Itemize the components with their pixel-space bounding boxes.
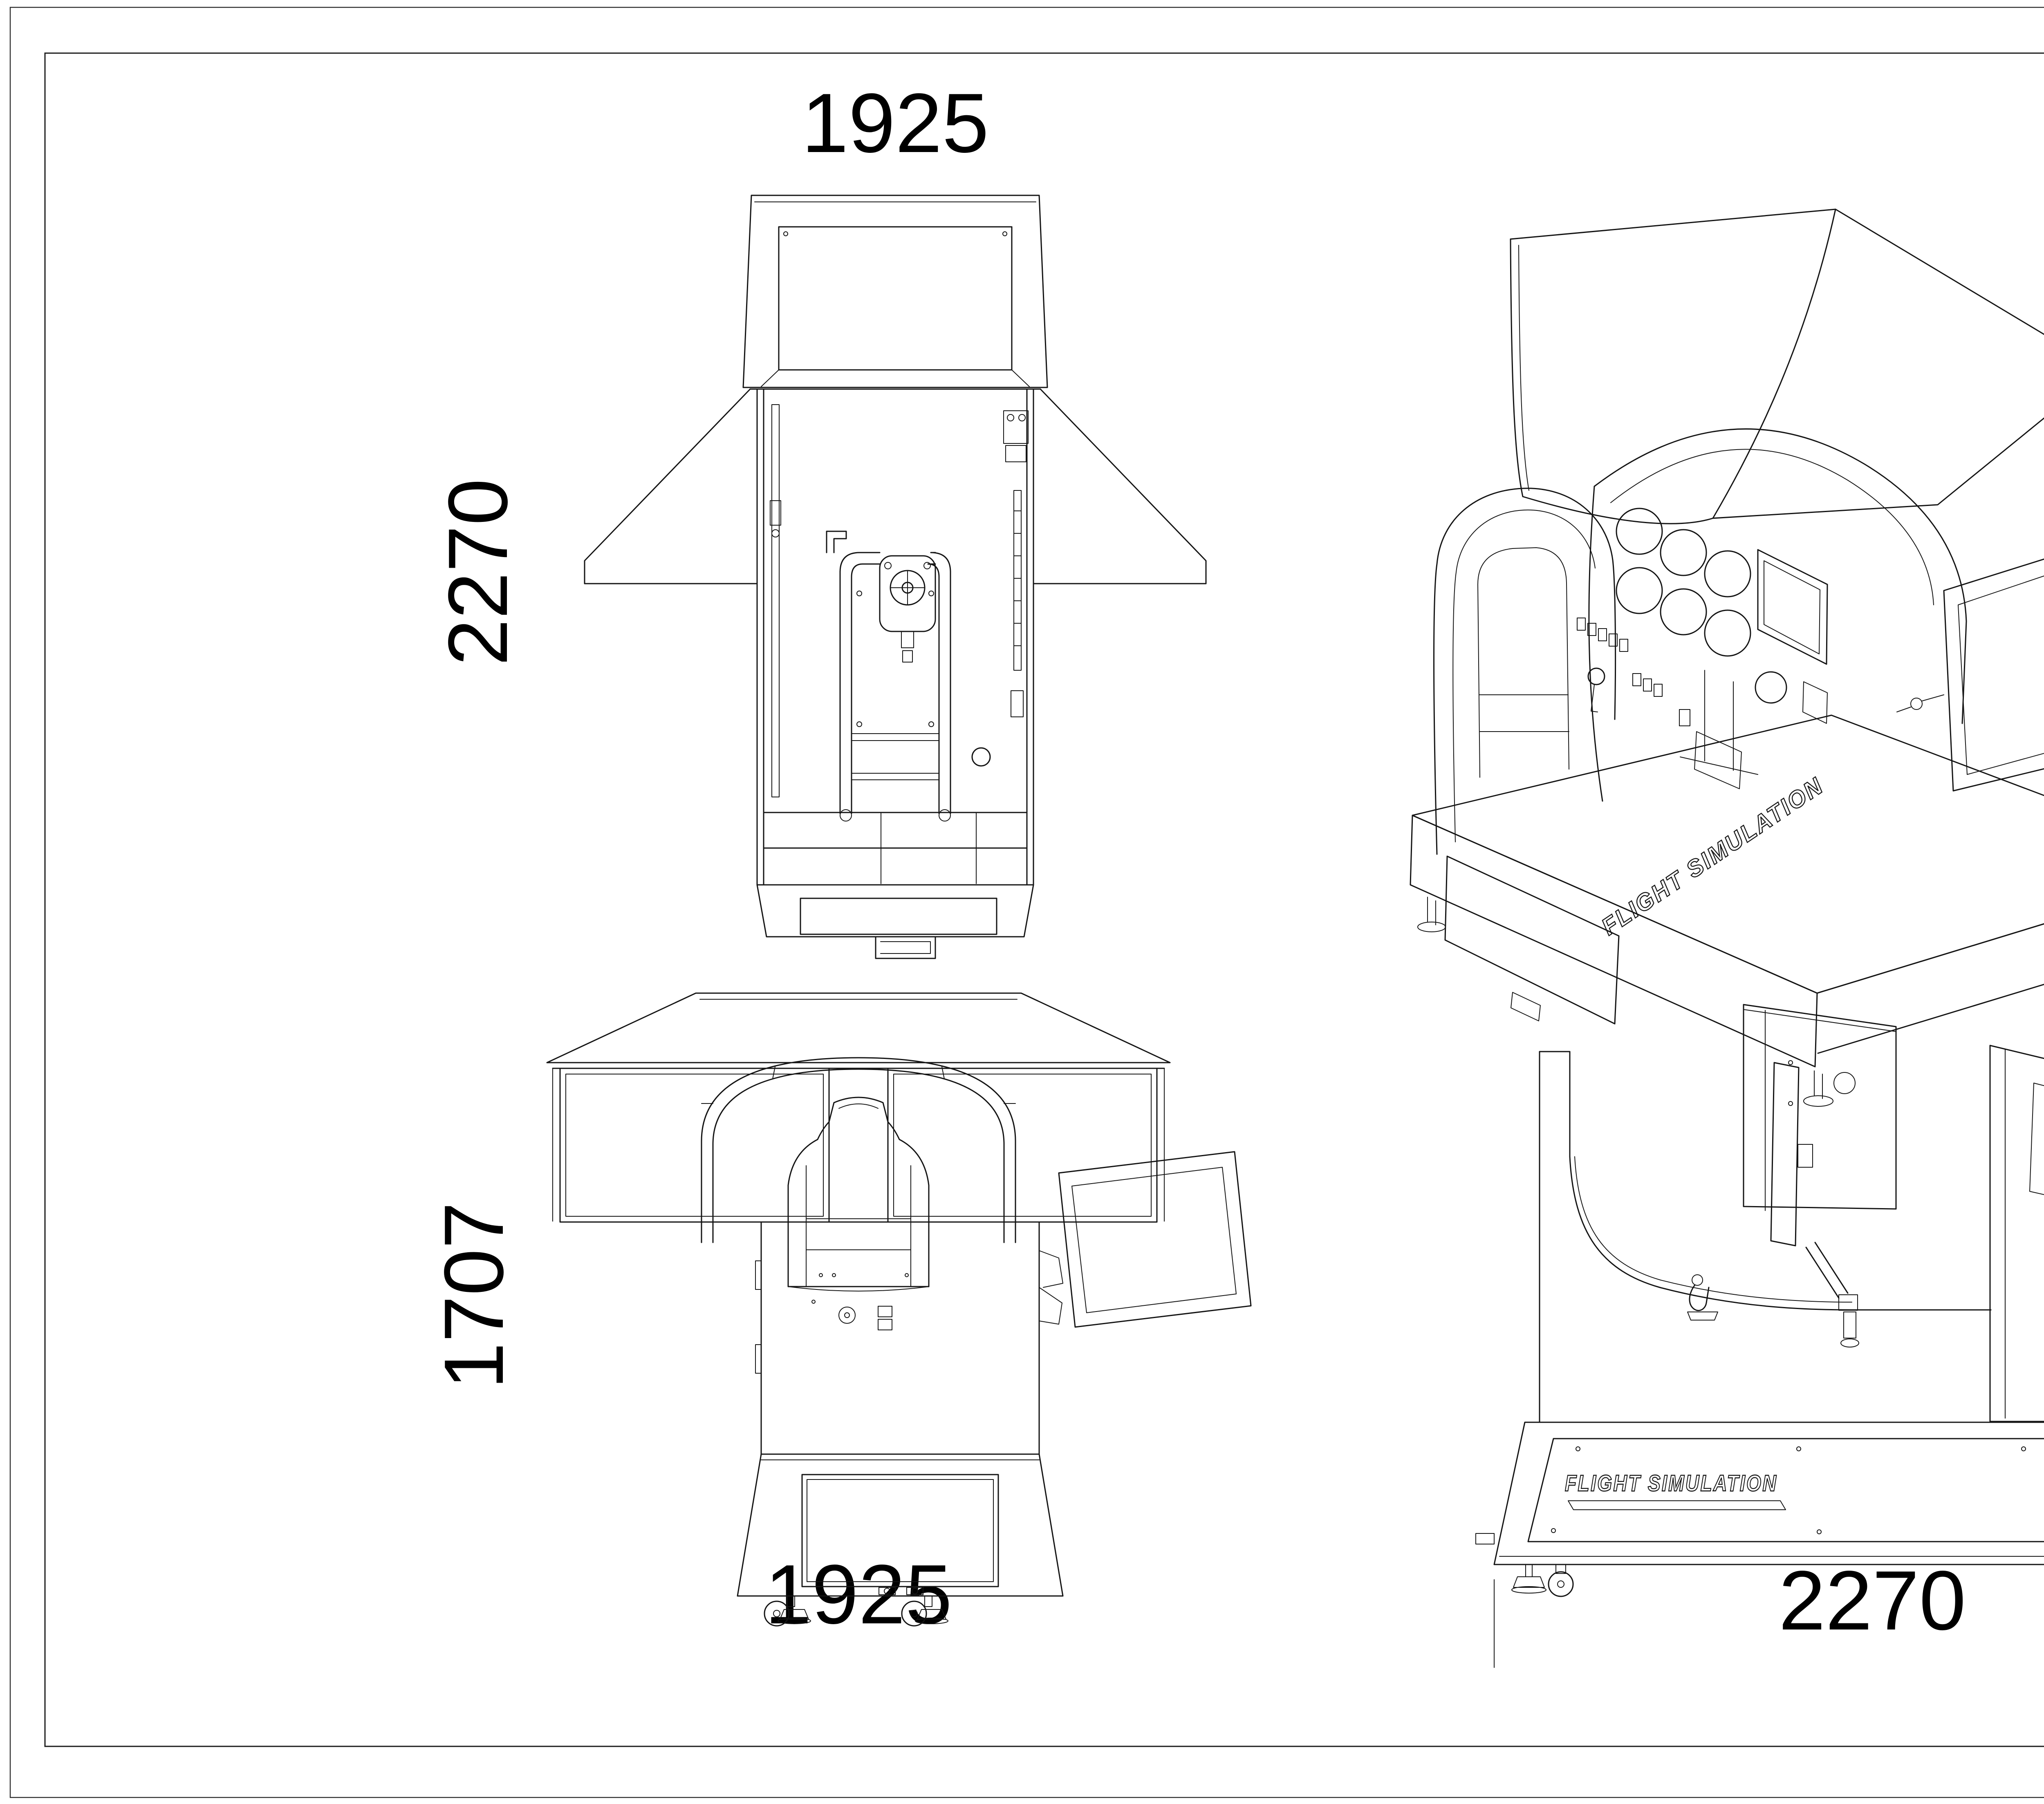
iso-brand-text: FLIGHT SIMULATION [1597, 772, 1829, 940]
front-view-width-value: 1925 [765, 1547, 952, 1641]
side-view: 1707 2270 [1472, 981, 2044, 1667]
side-view-length-value: 2270 [1779, 1553, 1966, 1647]
side-view-length-dimension: 2270 [1472, 1553, 2044, 1667]
drawing-sheet: DA40三视图 1925 2270 [0, 0, 2044, 1804]
top-view-width-dimension: 1925 [562, 76, 1228, 184]
cad-canvas: DA40三视图 1925 2270 [0, 0, 2044, 1804]
front-view-height-value: 1707 [427, 1202, 521, 1389]
top-view: 1925 2270 [431, 76, 1228, 975]
top-view-depth-value: 2270 [431, 479, 525, 666]
top-view-depth-dimension: 2270 [431, 172, 551, 975]
outer-border [10, 7, 2044, 1797]
top-view-width-value: 1925 [802, 76, 989, 170]
isometric-view: FLIGHT SIMULATION [1410, 209, 2044, 1106]
front-view: 1707 1925 [427, 975, 1251, 1655]
front-view-height-dimension: 1707 [427, 975, 547, 1616]
front-view-width-dimension: 1925 [533, 1547, 1183, 1655]
side-brand-text: FLIGHT SIMULATION [1565, 1470, 1777, 1496]
